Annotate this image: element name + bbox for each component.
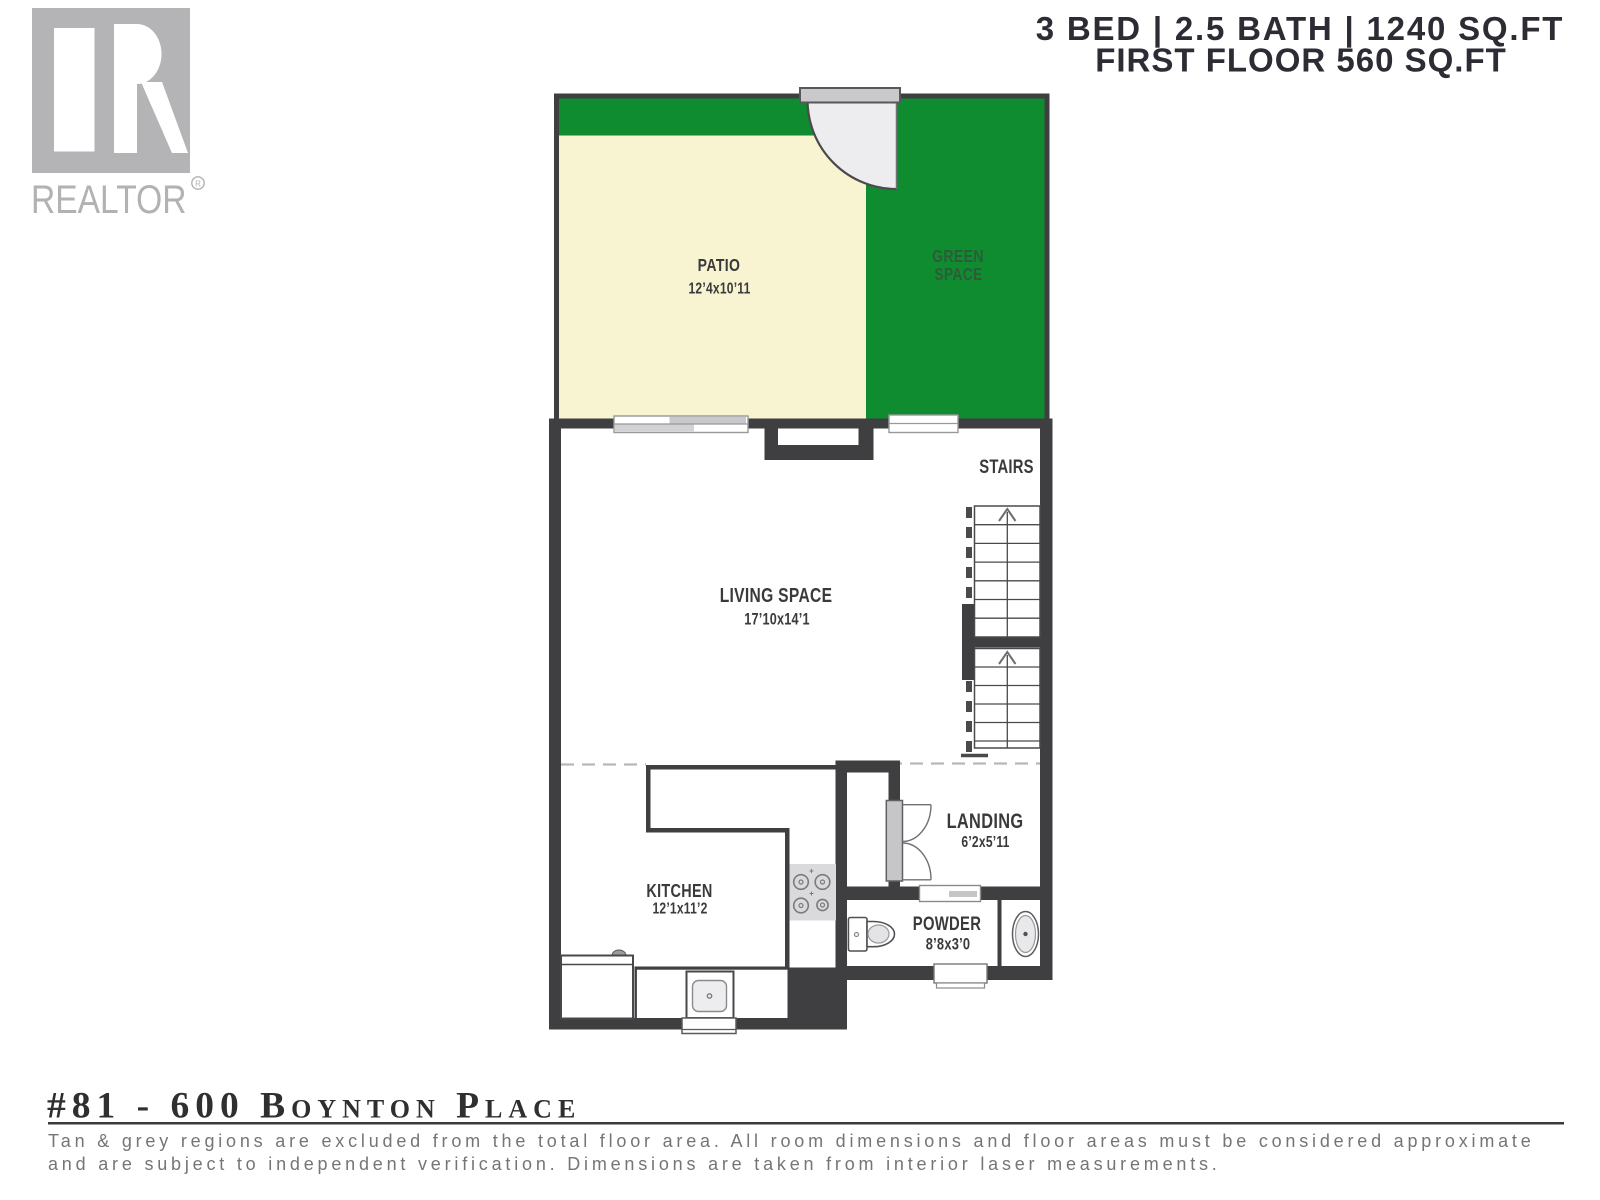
svg-text:PATIO: PATIO: [698, 255, 741, 275]
svg-text:and are subject to independent: and are subject to independent verificat…: [48, 1154, 1221, 1174]
svg-text:STAIRS: STAIRS: [979, 456, 1034, 477]
svg-text:Tan & grey regions are exclude: Tan & grey regions are excluded from the…: [48, 1131, 1535, 1151]
svg-text:6’2x5’11: 6’2x5’11: [961, 833, 1009, 851]
svg-text:#81 - 600 Boynton Place: #81 - 600 Boynton Place: [47, 1086, 581, 1127]
svg-text:REALTOR: REALTOR: [31, 177, 187, 221]
svg-text:12’1x11’2: 12’1x11’2: [652, 899, 707, 917]
svg-text:SPACE: SPACE: [935, 266, 983, 285]
svg-text:LANDING: LANDING: [947, 809, 1024, 832]
svg-text:12’4x10’11: 12’4x10’11: [688, 279, 750, 297]
svg-text:POWDER: POWDER: [913, 913, 981, 934]
svg-text:GREEN: GREEN: [932, 246, 984, 266]
svg-text:LIVING SPACE: LIVING SPACE: [720, 584, 833, 606]
svg-text:FIRST FLOOR 560 SQ.FT: FIRST FLOOR 560 SQ.FT: [1095, 42, 1507, 79]
svg-text:8’8x3’0: 8’8x3’0: [926, 936, 971, 954]
svg-text:R: R: [195, 180, 201, 189]
svg-text:17’10x14’1: 17’10x14’1: [744, 611, 810, 629]
